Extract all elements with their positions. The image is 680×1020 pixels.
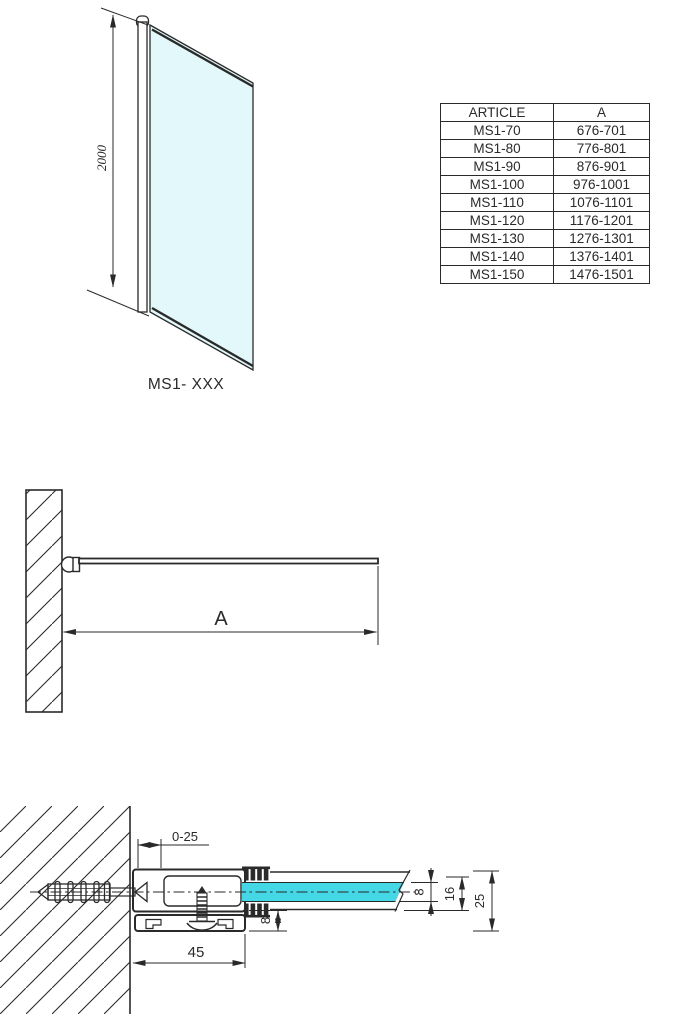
- table-cell: 1276-1301: [554, 230, 650, 248]
- table-cell: MS1-140: [441, 248, 554, 266]
- table-row: MS1-70676-701: [441, 122, 650, 140]
- wall-offset-dimension: 0-25: [138, 829, 209, 868]
- glass-panel: [150, 25, 253, 370]
- table-cell: MS1-150: [441, 266, 554, 284]
- table-cell: 1376-1401: [554, 248, 650, 266]
- table-row: MS1-90876-901: [441, 158, 650, 176]
- table-cell: 776-801: [554, 140, 650, 158]
- table-header-article: ARTICLE: [441, 104, 554, 122]
- technical-drawing-page: { "colors": { "line": "#2a2a2a", "glass_…: [0, 0, 680, 1020]
- table-row: MS1-1401376-1401: [441, 248, 650, 266]
- table-cell: 676-701: [554, 122, 650, 140]
- total-depth-label: 25: [472, 894, 487, 908]
- wall-profile-section: [133, 870, 245, 912]
- total-depth-dimension: 25: [472, 871, 499, 931]
- table-header-row: ARTICLE A: [441, 104, 650, 122]
- glass-panel-plan: [79, 559, 378, 564]
- wall-bracket: [62, 557, 80, 572]
- bottom-cover-profile: [135, 915, 245, 931]
- clamp-height-label: 16: [442, 887, 457, 901]
- width-dimension: A: [64, 566, 379, 645]
- detail-wall-section: [0, 806, 130, 1014]
- table-row: MS1-100976-1001: [441, 176, 650, 194]
- table-cell: 876-901: [554, 158, 650, 176]
- model-label: MS1- XXX: [148, 376, 225, 393]
- table-cell: MS1-130: [441, 230, 554, 248]
- table-cell: MS1-100: [441, 176, 554, 194]
- front-view-drawing: 2000 MS1- XXX: [0, 0, 300, 400]
- table-header-a: A: [554, 104, 650, 122]
- table-row: MS1-1301276-1301: [441, 230, 650, 248]
- spec-table: ARTICLE A MS1-70676-701MS1-80776-801MS1-…: [440, 103, 650, 284]
- glass-thickness-label: 8: [412, 888, 427, 895]
- table-row: MS1-1501476-1501: [441, 266, 650, 284]
- table-cell: MS1-80: [441, 140, 554, 158]
- spec-table-body: MS1-70676-701MS1-80776-801MS1-90876-901M…: [441, 122, 650, 284]
- width-dimension-label: A: [214, 608, 228, 630]
- table-cell: 976-1001: [554, 176, 650, 194]
- table-cell: 1176-1201: [554, 212, 650, 230]
- wall-section: [26, 490, 62, 712]
- table-cell: MS1-90: [441, 158, 554, 176]
- table-row: MS1-1201176-1201: [441, 212, 650, 230]
- table-cell: 1076-1101: [554, 194, 650, 212]
- table-cell: 1476-1501: [554, 266, 650, 284]
- table-row: MS1-1101076-1101: [441, 194, 650, 212]
- profile-width-label: 45: [188, 944, 205, 961]
- wall-profile: [137, 16, 149, 312]
- detail-view-drawing: 0-25 45 8 8 16 25: [0, 800, 520, 1020]
- profile-width-dimension: 45: [133, 934, 245, 968]
- table-cell: MS1-120: [441, 212, 554, 230]
- table-cell: MS1-110: [441, 194, 554, 212]
- table-row: MS1-80776-801: [441, 140, 650, 158]
- height-dimension-label: 2000: [94, 145, 109, 172]
- plan-view-drawing: A: [0, 480, 420, 730]
- bottom-profile-label: 8: [258, 917, 273, 924]
- wall-offset-label: 0-25: [172, 829, 198, 844]
- table-cell: MS1-70: [441, 122, 554, 140]
